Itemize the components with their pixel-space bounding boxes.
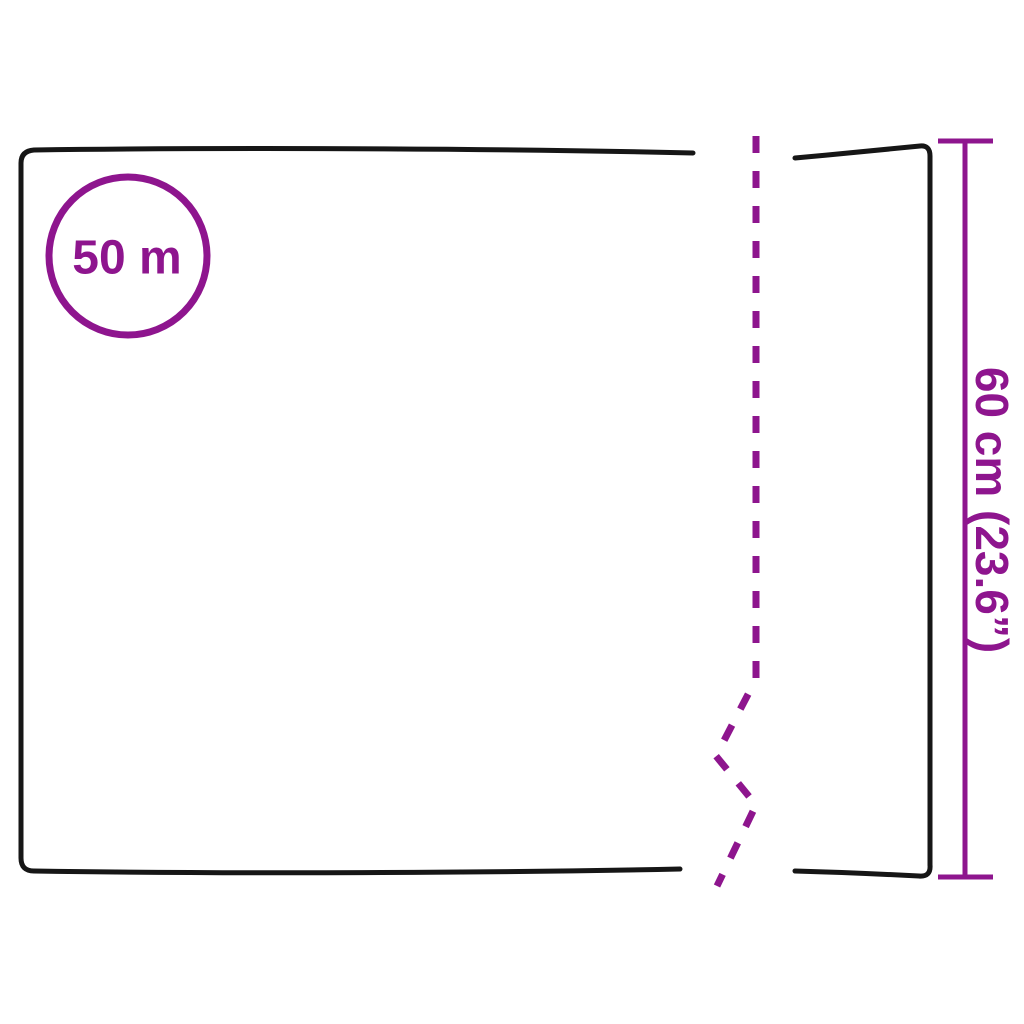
product-dimension-diagram: 50 m 60 cm (23.6”): [0, 0, 1024, 1024]
break-line-dashed: [716, 136, 756, 886]
sheet-right-piece-outline: [795, 146, 930, 876]
length-label: 50 m: [72, 232, 181, 285]
width-dimension: 60 cm (23.6”): [938, 141, 1018, 877]
diagram-canvas: 50 m 60 cm (23.6”): [0, 0, 1024, 1024]
width-label: 60 cm (23.6”): [966, 367, 1018, 653]
